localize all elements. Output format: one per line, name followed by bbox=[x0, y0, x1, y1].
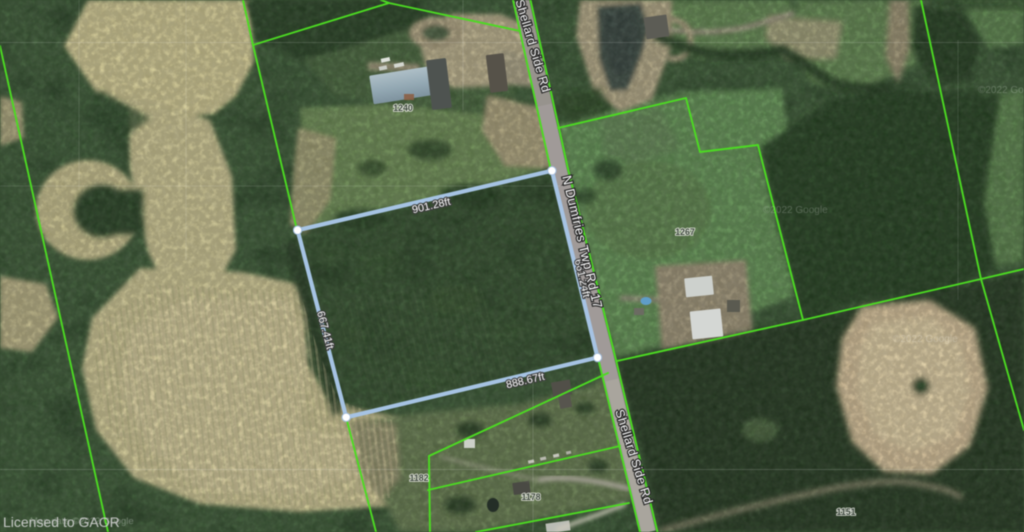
svg-text:©2022 Google: ©2022 Google bbox=[763, 205, 828, 216]
svg-text:Licensed to GAOR: Licensed to GAOR bbox=[3, 514, 120, 530]
svg-text:1240: 1240 bbox=[393, 103, 413, 113]
svg-text:1267: 1267 bbox=[675, 227, 695, 237]
svg-text:1178: 1178 bbox=[521, 492, 540, 502]
svg-text:©2022 Google: ©2022 Google bbox=[893, 334, 958, 345]
svg-text:©2022 Goo: ©2022 Goo bbox=[978, 85, 1024, 96]
svg-text:1182: 1182 bbox=[409, 473, 428, 483]
svg-text:1151: 1151 bbox=[836, 507, 855, 517]
